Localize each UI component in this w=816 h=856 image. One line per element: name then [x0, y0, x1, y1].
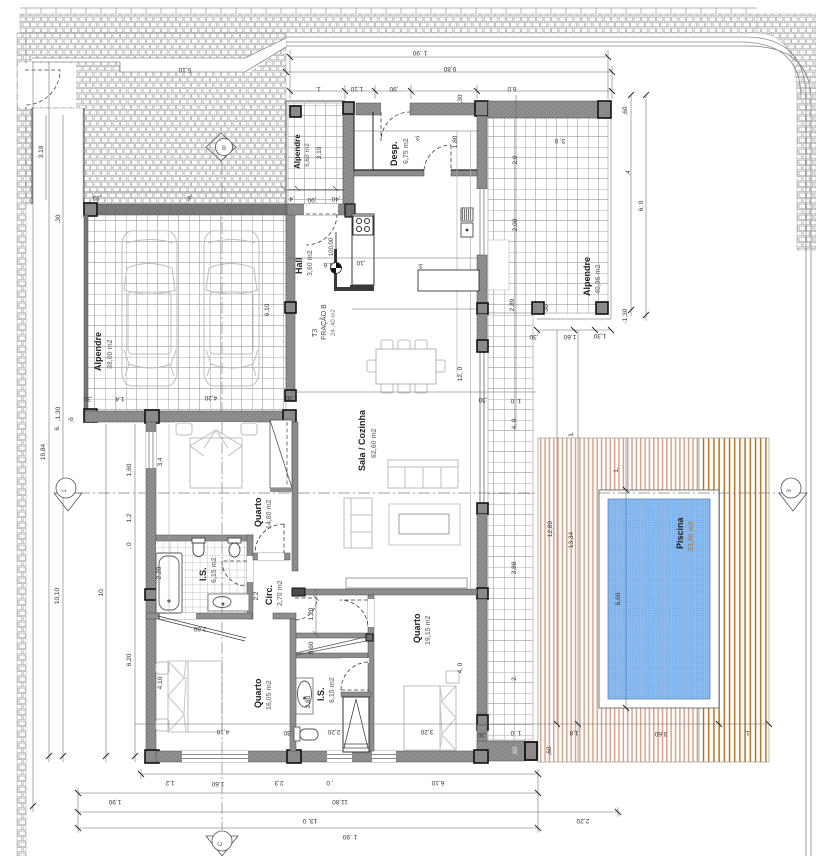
- svg-text:,30: ,30: [283, 729, 292, 736]
- svg-text:1. 0: 1. 0: [510, 729, 521, 736]
- svg-text:,60: ,60: [622, 106, 629, 115]
- svg-text:1,30: 1,30: [593, 332, 606, 339]
- svg-text:2,20: 2,20: [156, 566, 163, 579]
- svg-text:Hall: Hall: [294, 257, 304, 274]
- svg-text:1,10: 1,10: [350, 85, 363, 92]
- svg-text:Piscina: Piscina: [675, 516, 685, 549]
- svg-text:6,15 m2: 6,15 m2: [211, 557, 218, 583]
- svg-text:0,60: 0,60: [308, 641, 315, 654]
- svg-text:I.S.: I.S.: [198, 567, 208, 581]
- svg-text:10.: 10.: [98, 587, 105, 596]
- svg-text:4. 0: 4. 0: [511, 418, 518, 429]
- svg-text:3,60 m2: 3,60 m2: [307, 250, 314, 276]
- svg-text:6,15 m2: 6,15 m2: [329, 677, 336, 703]
- svg-text:Quarto: Quarto: [412, 613, 422, 643]
- svg-text:Circ.: Circ.: [264, 585, 274, 605]
- svg-text:1,: 1,: [744, 729, 750, 736]
- svg-text:,30: ,30: [55, 214, 62, 223]
- svg-text:FRAÇÃO B: FRAÇÃO B: [319, 304, 328, 340]
- svg-text:2,80: 2,80: [193, 625, 206, 632]
- svg-text:,4: ,4: [625, 170, 632, 176]
- svg-text:3, 0: 3, 0: [554, 137, 565, 144]
- svg-text:3,88: 3,88: [511, 561, 518, 574]
- svg-text:3,4: 3,4: [157, 457, 164, 466]
- svg-text:6, 0: 6, 0: [638, 200, 645, 211]
- svg-text:30: 30: [543, 304, 550, 312]
- svg-text:3,20: 3,20: [420, 728, 433, 735]
- svg-text:62,60 m2: 62,60 m2: [371, 428, 378, 458]
- svg-text:1,60: 1,60: [126, 463, 133, 476]
- svg-text:6.: 6.: [54, 425, 61, 431]
- svg-text:9,80: 9,80: [443, 65, 456, 72]
- svg-text:,60: ,60: [546, 746, 553, 755]
- svg-text:,30: ,30: [478, 396, 487, 403]
- svg-text:,40: ,40: [331, 195, 340, 202]
- svg-text:10,10: 10,10: [54, 587, 61, 604]
- svg-text:1,20: 1,20: [308, 607, 315, 620]
- svg-text:,90: ,90: [307, 196, 316, 203]
- svg-text:Desp.: Desp.: [389, 141, 399, 166]
- svg-text:24 ,40 m2: 24 ,40 m2: [331, 309, 337, 336]
- svg-text:Sala / Cozinha: Sala / Cozinha: [357, 409, 367, 471]
- svg-text:3,60: 3,60: [654, 730, 667, 737]
- svg-text:4,10: 4,10: [157, 676, 164, 689]
- svg-text:19,15 m2: 19,15 m2: [425, 615, 432, 645]
- svg-text:6,75 m2: 6,75 m2: [403, 138, 410, 164]
- svg-text:1,90: 1,90: [108, 798, 121, 805]
- svg-text:B: B: [222, 146, 226, 152]
- svg-text:, 0: , 0: [126, 542, 133, 550]
- svg-text:Alpendre: Alpendre: [293, 134, 302, 169]
- svg-text:2,89: 2,89: [509, 298, 516, 311]
- svg-text:5,60 m2: 5,60 m2: [304, 143, 311, 167]
- svg-text:,4: ,4: [289, 195, 295, 202]
- svg-text:1,2: 1,2: [165, 779, 174, 786]
- svg-text:16,05 m2: 16,05 m2: [266, 680, 273, 710]
- svg-text:23,80 m2: 23,80 m2: [688, 521, 695, 551]
- svg-text:I.S.: I.S.: [316, 687, 326, 701]
- svg-text:1. 0: 1. 0: [510, 397, 521, 404]
- svg-text:,30: ,30: [83, 395, 92, 402]
- svg-text:,1,30: ,1,30: [55, 406, 62, 421]
- svg-text:3,19: 3,19: [316, 146, 323, 159]
- svg-text:13,34: 13,34: [568, 531, 575, 548]
- svg-text:6,60: 6,60: [615, 592, 622, 605]
- svg-text:,10: ,10: [356, 259, 365, 266]
- svg-text:3.: 3.: [414, 134, 420, 141]
- svg-text:1.: 1.: [315, 85, 321, 92]
- svg-text:Alpendre: Alpendre: [93, 332, 103, 371]
- svg-text:,30: ,30: [285, 394, 294, 401]
- svg-text:3,19: 3,19: [38, 145, 45, 158]
- svg-text:1,60: 1,60: [211, 780, 224, 787]
- svg-text:,60: ,60: [512, 746, 519, 755]
- svg-text:1.: 1.: [568, 431, 575, 437]
- svg-text:5,10: 5,10: [178, 66, 191, 73]
- svg-text:2,20: 2,20: [576, 817, 589, 824]
- svg-text:1 ,90: 1 ,90: [342, 833, 357, 840]
- svg-text:1 ,90: 1 ,90: [412, 49, 427, 56]
- svg-text:1,4: 1,4: [115, 395, 124, 402]
- svg-text:4,10: 4,10: [216, 728, 229, 735]
- svg-text:,90: ,90: [389, 85, 398, 92]
- svg-text:2,3: 2,3: [274, 779, 283, 786]
- svg-text:2,0: 2,0: [512, 155, 519, 164]
- svg-text:19,84: 19,84: [40, 443, 47, 460]
- svg-text:2,20: 2,20: [327, 728, 340, 735]
- svg-text:12,89: 12,89: [547, 520, 554, 537]
- svg-text:1,: 1,: [613, 467, 620, 473]
- svg-text:2.: 2.: [511, 675, 518, 681]
- svg-text:1,8: 1,8: [569, 729, 578, 736]
- svg-text:6,10: 6,10: [431, 779, 444, 786]
- svg-text:100.00: 100.00: [329, 237, 335, 256]
- svg-text:,6: ,6: [68, 417, 75, 423]
- svg-text:3.: 3.: [417, 262, 423, 269]
- svg-text:Quarto: Quarto: [253, 497, 263, 527]
- svg-text:C: C: [218, 841, 224, 846]
- svg-text:,33: ,33: [92, 194, 101, 201]
- svg-text:38,00 m2: 38,00 m2: [107, 339, 114, 369]
- svg-text:-1,30: -1,30: [622, 308, 629, 323]
- svg-text:1,80: 1,80: [452, 135, 459, 148]
- svg-text:6,10: 6,10: [264, 303, 271, 316]
- svg-text:2,2: 2,2: [253, 591, 260, 600]
- svg-text:11,80: 11,80: [332, 798, 348, 805]
- svg-text:,6: ,6: [187, 194, 193, 201]
- svg-text:2,80: 2,80: [305, 695, 312, 708]
- svg-text:4,20: 4,20: [204, 394, 217, 401]
- svg-text:2,00: 2,00: [512, 218, 519, 231]
- svg-text:14,80 m2: 14,80 m2: [266, 499, 273, 529]
- svg-text:40,96 m2: 40,96 m2: [595, 264, 602, 294]
- svg-text:12, 0: 12, 0: [457, 366, 464, 381]
- svg-text:6,0: 6,0: [507, 85, 516, 92]
- svg-text:1,2: 1,2: [126, 513, 133, 522]
- svg-text:Alpendre: Alpendre: [582, 257, 592, 296]
- svg-text:T3: T3: [312, 329, 319, 337]
- svg-text:2,70 m2: 2,70 m2: [277, 580, 284, 606]
- svg-text:4, 0: 4, 0: [457, 662, 464, 673]
- svg-text:6,20: 6,20: [126, 653, 133, 666]
- svg-text:13, 0: 13, 0: [302, 817, 317, 824]
- svg-text:1,60: 1,60: [563, 333, 576, 340]
- svg-text:Quarto: Quarto: [253, 678, 263, 708]
- svg-text:,30: ,30: [529, 333, 538, 340]
- svg-text:, 0: , 0: [326, 779, 334, 786]
- svg-text:,30: ,30: [457, 94, 464, 103]
- svg-text:,30: ,30: [477, 731, 486, 738]
